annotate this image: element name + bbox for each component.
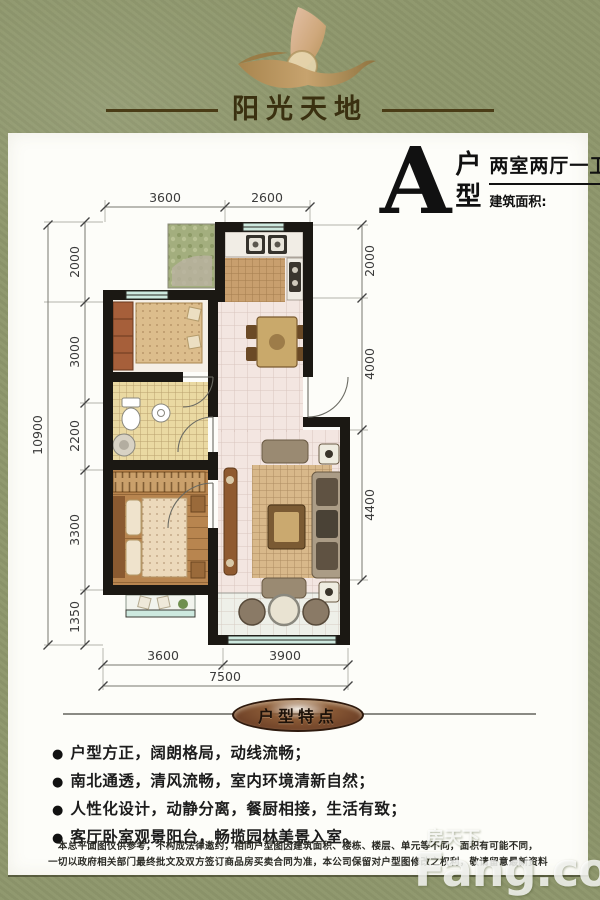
dim-left-4: 3300	[67, 514, 82, 546]
dim-bottom-1: 3600	[147, 648, 179, 663]
flyer-page: 阳光天地 A 户 型 两室两厅一卫 建筑面积: ㎡	[0, 0, 600, 900]
bullet-icon: ●	[52, 803, 63, 818]
plan-header: A 户 型 两室两厅一卫 建筑面积: ㎡	[380, 141, 600, 221]
area-row: 建筑面积: ㎡	[489, 191, 600, 210]
bullet-icon: ●	[52, 775, 63, 790]
plan-layout: 两室两厅一卫	[489, 151, 600, 185]
area-label: 建筑面积:	[489, 191, 546, 210]
feature-item: ● 人性化设计，动静分离，餐厨相接，生活有致；	[52, 797, 406, 819]
feature-item: ● 南北通透，清风流畅，室内环境清新自然；	[52, 769, 406, 791]
dim-bottom-2: 3900	[269, 648, 301, 663]
garden-patch	[168, 224, 215, 288]
dim-left-total: 10900	[30, 415, 45, 455]
dim-top-2: 2600	[251, 190, 283, 205]
bullet-icon: ●	[52, 747, 63, 762]
features-list: ● 户型方正，阔朗格局，动线流畅； ● 南北通透，清风流畅，室内环境清新自然； …	[52, 741, 406, 853]
kitchen-fittings	[225, 232, 303, 302]
title-rule-left	[106, 109, 218, 112]
disclaimer-line-2: 一切以政府相关部门最终批文及双方签订商品房买卖合同为准，本公司保留对户型图修改之…	[48, 856, 548, 869]
content-card: A 户 型 两室两厅一卫 建筑面积: ㎡	[8, 133, 588, 875]
disclaimer-line-1: 本总平面图仅供参考，不构成法律邀约，相同户型图因建筑面积、楼栋、楼层、单元等不同…	[48, 840, 548, 853]
dim-right-1: 2000	[362, 245, 377, 277]
dim-left-1: 2000	[67, 246, 82, 278]
plan-type-label: 户 型	[455, 149, 481, 213]
floor-plan: 3600 2600 10900 2000 3000 2200 3300 1350…	[30, 188, 390, 698]
disclaimer: 本总平面图仅供参考，不构成法律邀约，相同户型图因建筑面积、楼栋、楼层、单元等不同…	[48, 840, 548, 872]
bedroom2-furniture	[113, 302, 202, 370]
features-title-badge: 户型特点	[232, 698, 364, 732]
feature-item: ● 户型方正，阔朗格局，动线流畅；	[52, 741, 406, 763]
features-band: 户型特点	[8, 698, 588, 732]
title-rule-right	[382, 109, 494, 112]
balcony-furniture	[239, 595, 329, 625]
brand-title-row: 阳光天地	[0, 95, 600, 125]
dim-top-1: 3600	[149, 190, 181, 205]
dim-left-5: 1350	[67, 601, 82, 633]
dim-left-2: 3000	[67, 336, 82, 368]
dim-right-3: 4400	[362, 489, 377, 521]
sail-bird-logo-icon	[218, 4, 382, 94]
dim-left-3: 2200	[67, 420, 82, 452]
dim-bottom-total: 7500	[209, 669, 241, 684]
features-title: 户型特点	[258, 703, 338, 727]
bay-window	[126, 595, 195, 617]
plan-subtitle-block: 两室两厅一卫 建筑面积: ㎡	[489, 151, 600, 210]
plan-letter: A	[380, 141, 451, 221]
brand-title: 阳光天地	[232, 95, 368, 125]
dim-right-2: 4000	[362, 348, 377, 380]
